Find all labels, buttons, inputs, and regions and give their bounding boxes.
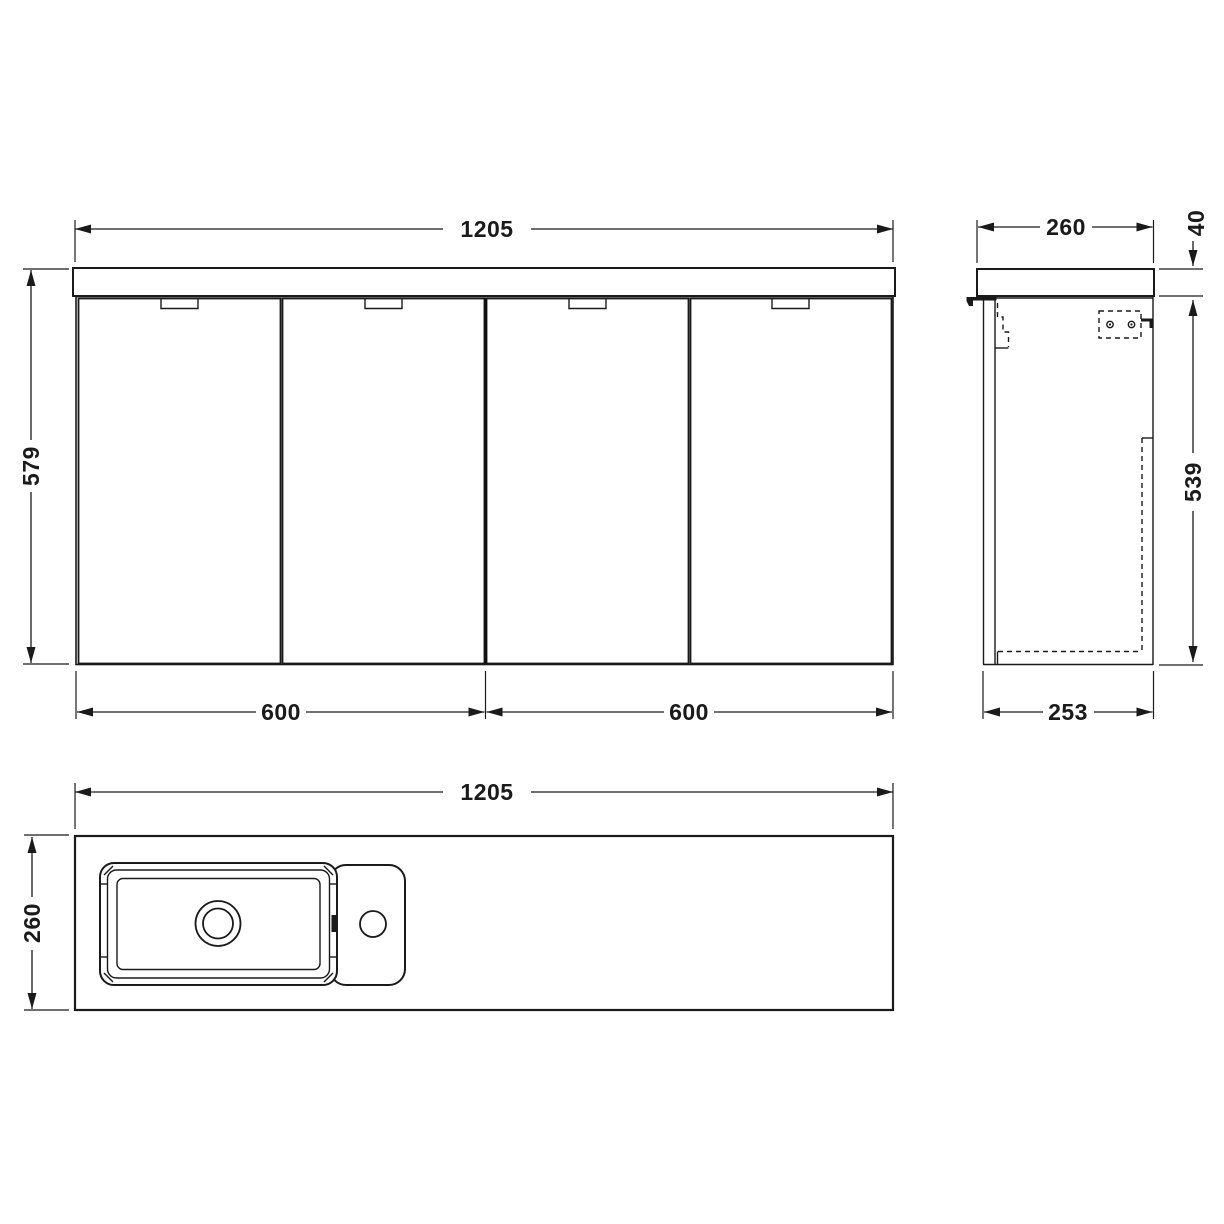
worktop-side xyxy=(977,269,1154,296)
hinge-detail xyxy=(996,303,1009,348)
dim-side-worktop-label: 40 xyxy=(1183,210,1209,237)
door-2 xyxy=(283,299,485,664)
overflow-slot xyxy=(332,915,337,932)
dim-side-cabinet-depth-label: 253 xyxy=(1048,699,1088,725)
door-4 xyxy=(691,299,892,664)
drain-inner xyxy=(203,909,233,939)
dim-side-worktop: 40 xyxy=(1159,210,1209,296)
bracket-hook xyxy=(1150,319,1154,329)
front-view: 1205 579 600 600 xyxy=(18,216,895,725)
dim-side-height-label: 539 xyxy=(1180,462,1206,502)
dim-front-left-section-label: 600 xyxy=(261,699,301,725)
dim-front-height-label: 579 xyxy=(18,446,44,486)
tap-hole xyxy=(360,911,386,937)
plan-view: 1205 260 xyxy=(19,779,893,1010)
dim-side-cabinet-depth: 253 xyxy=(983,671,1154,725)
dim-side-depth: 260 xyxy=(977,214,1154,263)
bracket-screw-dot xyxy=(1109,323,1111,325)
dim-side-depth-label: 260 xyxy=(1046,214,1086,240)
dim-plan-width-label: 1205 xyxy=(460,779,513,805)
dim-front-sections: 600 600 xyxy=(76,671,893,725)
dim-plan-width: 1205 xyxy=(75,779,893,829)
hinge-dashed-outline xyxy=(998,303,1009,347)
door-lip-hook xyxy=(967,298,974,306)
dim-plan-depth-label: 260 xyxy=(19,903,45,943)
side-view: 260 40 539 253 xyxy=(967,210,1210,725)
dim-front-width: 1205 xyxy=(75,216,893,262)
dim-side-height: 539 xyxy=(1159,300,1206,665)
dim-front-right-section-label: 600 xyxy=(669,699,709,725)
dim-front-height: 579 xyxy=(18,269,69,664)
bracket-screw-dot xyxy=(1130,323,1132,325)
dim-front-width-label: 1205 xyxy=(460,216,513,242)
dim-plan-depth: 260 xyxy=(19,835,69,1010)
drawing-svg: 1205 579 600 600 xyxy=(0,0,1224,1224)
wall-bracket-detail xyxy=(1099,311,1153,338)
worktop-front xyxy=(73,268,895,296)
interior-hidden-lines xyxy=(998,438,1154,664)
technical-drawing-canvas: 1205 579 600 600 xyxy=(0,0,1224,1224)
door-1 xyxy=(79,299,281,664)
door-3 xyxy=(487,299,689,664)
